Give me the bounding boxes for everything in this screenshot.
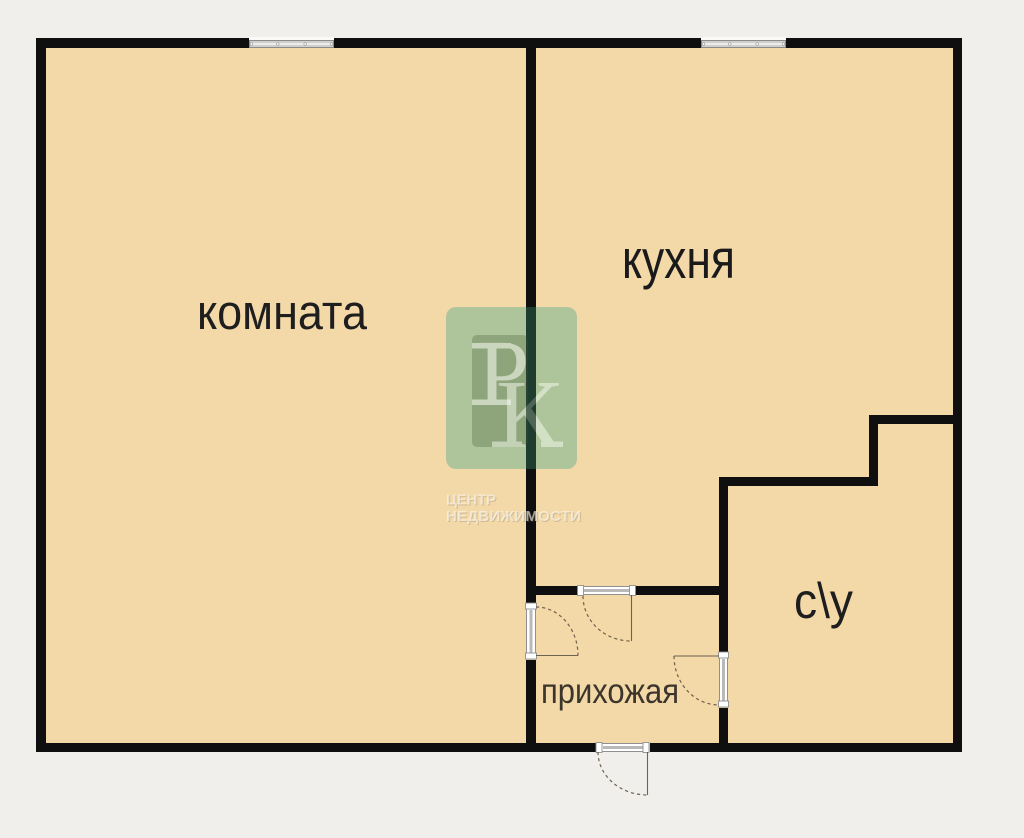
svg-text:кухня: кухня (622, 228, 735, 290)
svg-text:с\у: с\у (794, 573, 853, 629)
svg-text:комната: комната (197, 286, 368, 340)
svg-text:ЦЕНТР: ЦЕНТР (446, 492, 496, 509)
svg-text:прихожая: прихожая (541, 672, 679, 711)
svg-text:НЕДВИЖИМОСТИ: НЕДВИЖИМОСТИ (446, 508, 581, 525)
